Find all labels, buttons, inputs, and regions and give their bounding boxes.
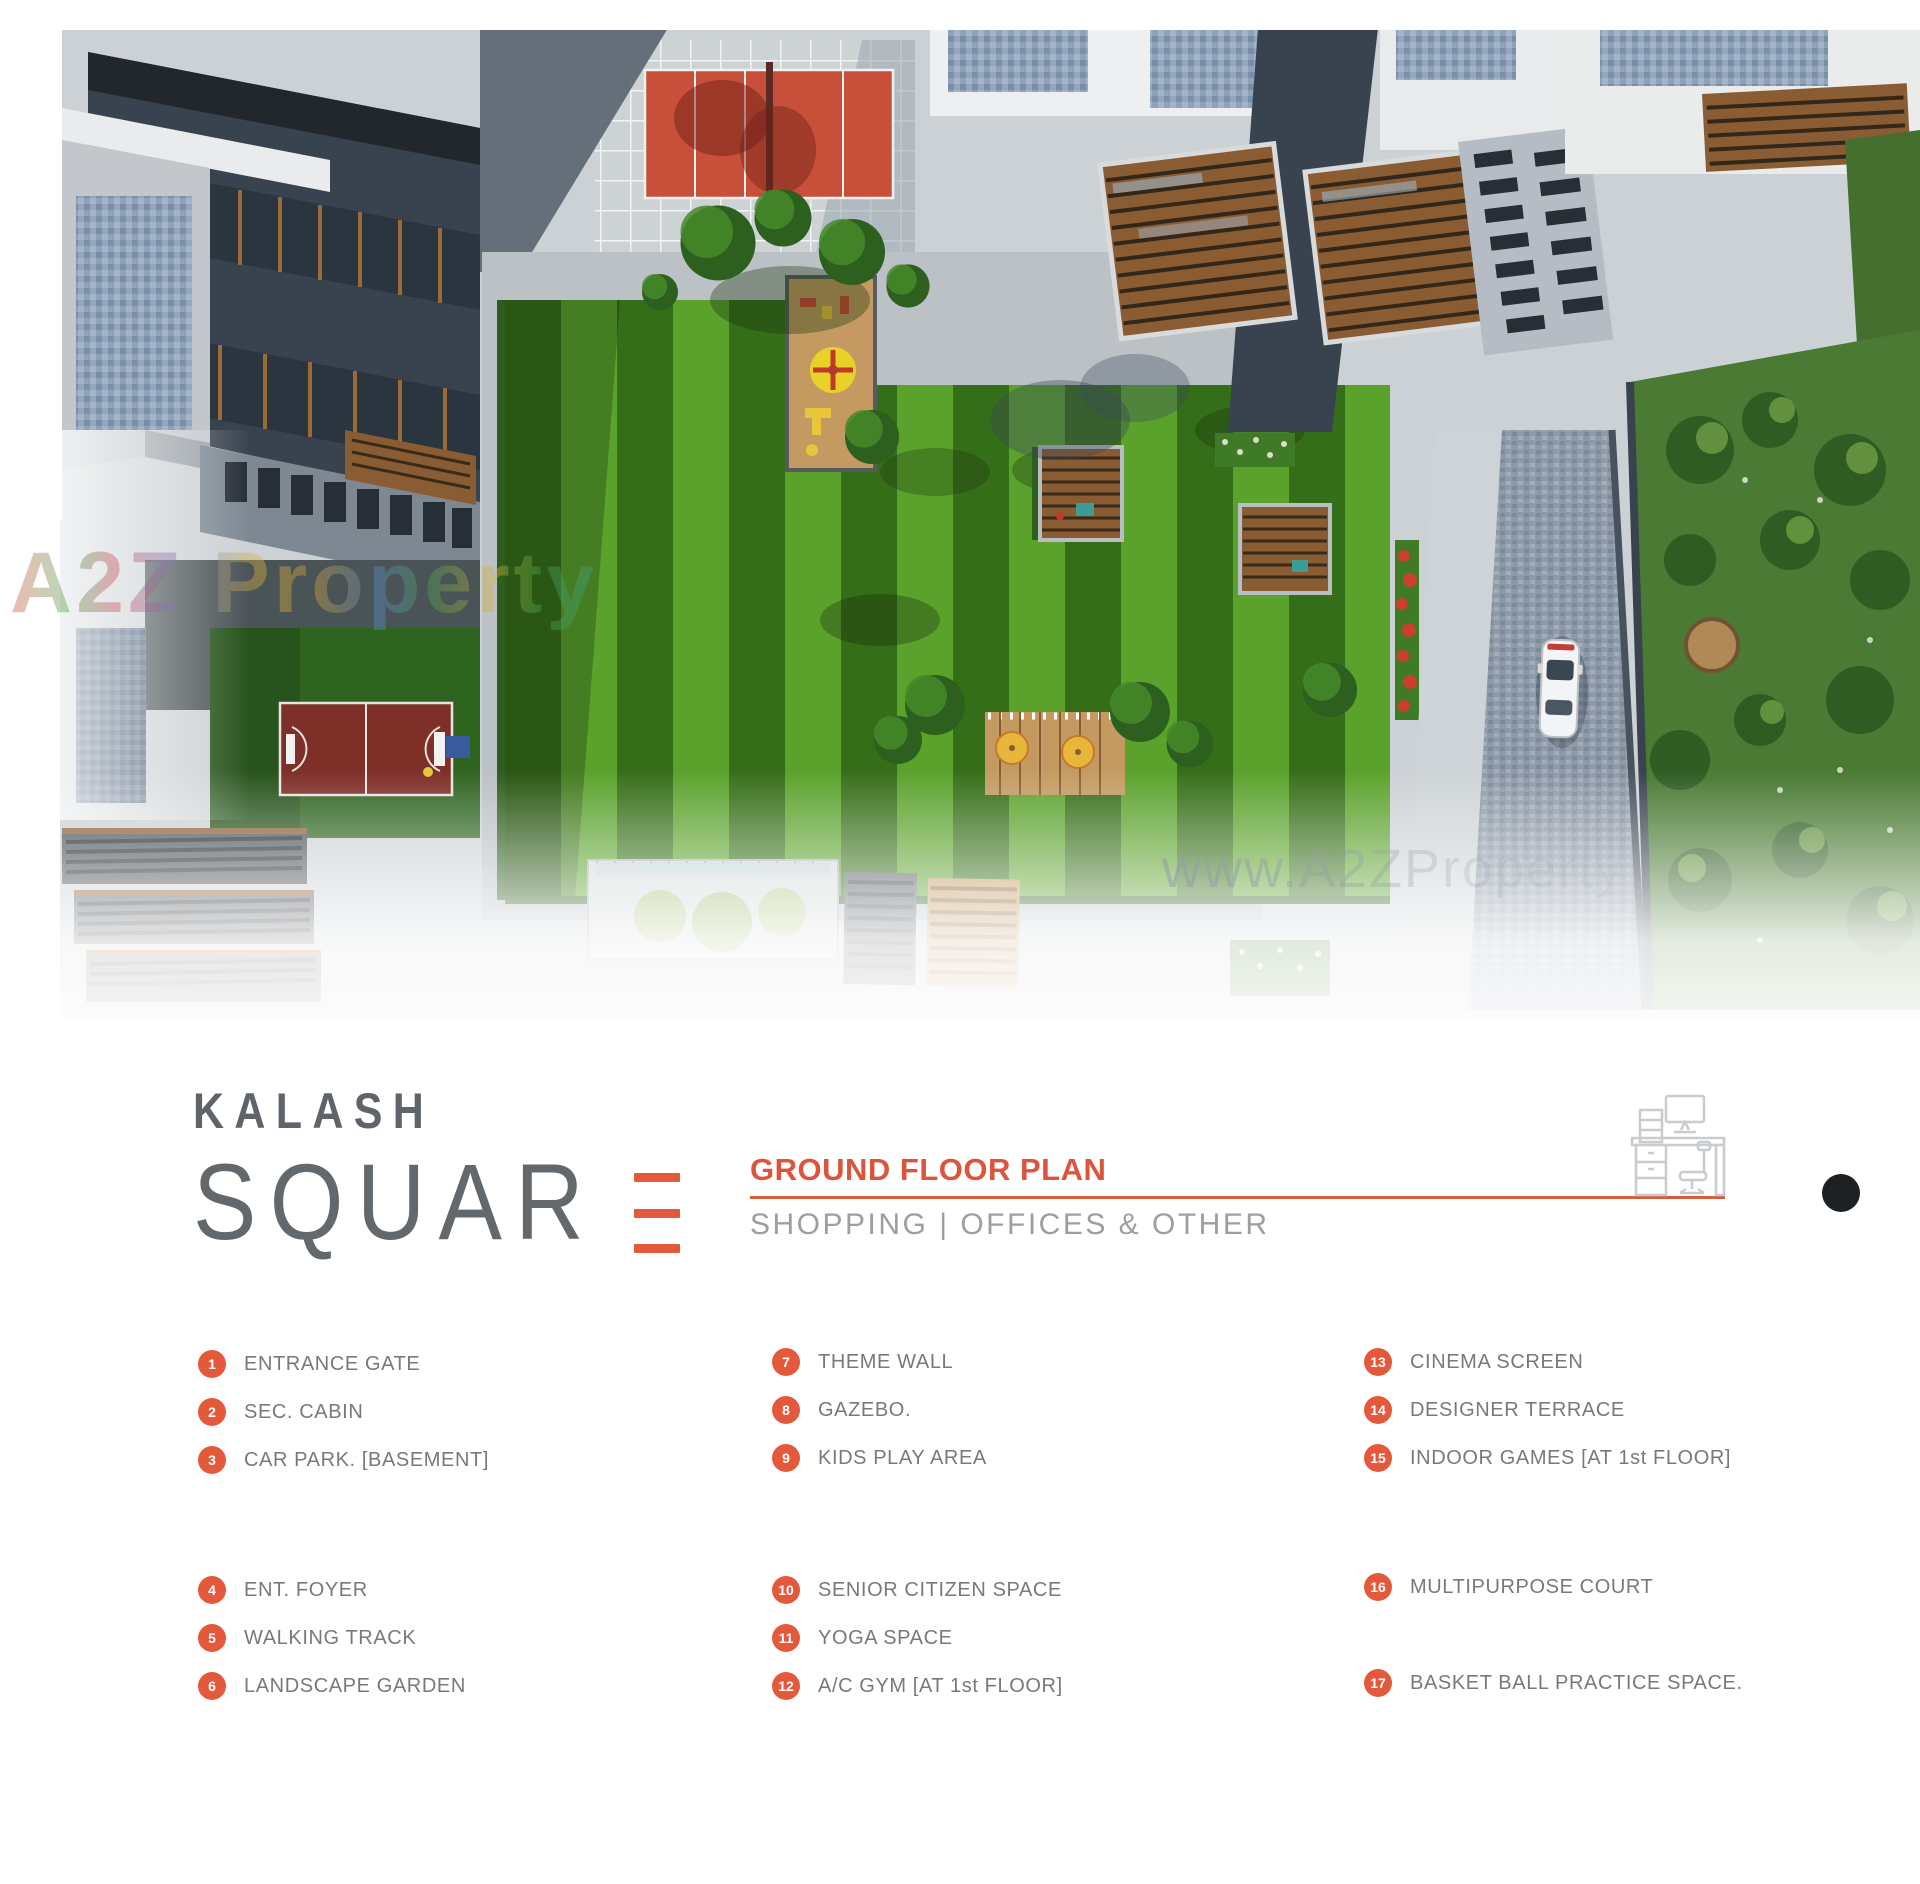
- legend-item-label: BASKET BALL PRACTICE SPACE.: [1410, 1672, 1743, 1695]
- legend-number-badge: 13: [1364, 1348, 1392, 1376]
- title-underline: [750, 1196, 1725, 1199]
- legend-item: 4 ENT. FOYER: [198, 1566, 466, 1614]
- legend-number-badge: 6: [198, 1672, 226, 1700]
- legend-number-badge: 4: [198, 1576, 226, 1604]
- legend-item-label: A/C GYM [AT 1st FLOOR]: [818, 1675, 1063, 1698]
- gazebo-pergola: [1032, 447, 1122, 540]
- legend-item: 6 LANDSCAPE GARDEN: [198, 1662, 466, 1710]
- legend-item-label: INDOOR GAMES [AT 1st FLOOR]: [1410, 1447, 1731, 1470]
- legend-number-badge: 16: [1364, 1573, 1392, 1601]
- legend-number-badge: 5: [198, 1624, 226, 1652]
- legend-item: 11 YOGA SPACE: [772, 1614, 1063, 1662]
- blue-tile-wall: [76, 196, 192, 430]
- legend-number-badge: 8: [772, 1396, 800, 1424]
- legend-item: 9 KIDS PLAY AREA: [772, 1434, 987, 1482]
- pergola-terrace-east: [1305, 152, 1490, 343]
- legend-col1-group2: 4 ENT. FOYER 5 WALKING TRACK 6 LANDSCAPE…: [198, 1566, 466, 1710]
- legend-item: 5 WALKING TRACK: [198, 1614, 466, 1662]
- legend-item-label: WALKING TRACK: [244, 1627, 416, 1650]
- legend-col3-group2: 16 MULTIPURPOSE COURT 17 BASKET BALL PRA…: [1364, 1563, 1743, 1707]
- legend-item-label: SENIOR CITIZEN SPACE: [818, 1579, 1062, 1602]
- aerial-render-graphic: [0, 0, 1920, 1080]
- legend-item-label: ENT. FOYER: [244, 1579, 368, 1602]
- white-car: [1535, 639, 1583, 738]
- legend-item-label: YOGA SPACE: [818, 1627, 953, 1650]
- legend-item: 2 SEC. CABIN: [198, 1388, 489, 1436]
- legend-item-label: DESIGNER TERRACE: [1410, 1399, 1625, 1422]
- legend-item-label: THEME WALL: [818, 1351, 953, 1374]
- legend-item-label: GAZEBO.: [818, 1399, 911, 1422]
- legend-item-label: MULTIPURPOSE COURT: [1410, 1576, 1653, 1599]
- legend-item: 17 BASKET BALL PRACTICE SPACE.: [1364, 1659, 1743, 1707]
- legend-item-label: ENTRANCE GATE: [244, 1353, 420, 1376]
- legend-item: 12 A/C GYM [AT 1st FLOOR]: [772, 1662, 1063, 1710]
- brochure-page: A2Z Property www.A2ZProperty KALASH SQUA…: [0, 0, 1920, 1884]
- legend-number-badge: 1: [198, 1350, 226, 1378]
- legend-number-badge: 9: [772, 1444, 800, 1472]
- round-planter: [1686, 619, 1738, 671]
- page-subtitle: SHOPPING | OFFICES & OTHER: [750, 1208, 1270, 1242]
- legend-item-label: KIDS PLAY AREA: [818, 1447, 987, 1470]
- legend-number-badge: 12: [772, 1672, 800, 1700]
- legend-number-badge: 17: [1364, 1669, 1392, 1697]
- legend-col3-group1: 13 CINEMA SCREEN 14 DESIGNER TERRACE 15 …: [1364, 1338, 1731, 1482]
- legend-item: 8 GAZEBO.: [772, 1386, 987, 1434]
- legend-col2-group2: 10 SENIOR CITIZEN SPACE 11 YOGA SPACE 12…: [772, 1566, 1063, 1710]
- legend-item: 14 DESIGNER TERRACE: [1364, 1386, 1731, 1434]
- legend-item: 1 ENTRANCE GATE: [198, 1340, 489, 1388]
- legend-col2-group1: 7 THEME WALL 8 GAZEBO. 9 KIDS PLAY AREA: [772, 1338, 987, 1482]
- legend-item-label: LANDSCAPE GARDEN: [244, 1675, 466, 1698]
- brand-word-kalash: KALASH: [193, 1082, 612, 1140]
- logo-letter-e-bars-icon: [634, 1173, 680, 1253]
- legend-number-badge: 7: [772, 1348, 800, 1376]
- office-desk-icon: [1628, 1090, 1728, 1198]
- legend-number-badge: 15: [1364, 1444, 1392, 1472]
- legend-item-label: CAR PARK. [BASEMENT]: [244, 1449, 489, 1472]
- aerial-site-render: A2Z Property www.A2ZProperty: [0, 0, 1920, 1080]
- legend-number-badge: 3: [198, 1446, 226, 1474]
- punch-hole-dot: [1822, 1174, 1860, 1212]
- legend-item-label: SEC. CABIN: [244, 1401, 363, 1424]
- court-equipment-cart: [446, 736, 470, 758]
- brand-word-square: SQUAR: [193, 1148, 597, 1256]
- legend-item: 7 THEME WALL: [772, 1338, 987, 1386]
- legend-number-badge: 14: [1364, 1396, 1392, 1424]
- red-multipurpose-court: [645, 62, 893, 206]
- page-title: GROUND FLOOR PLAN: [750, 1152, 1106, 1188]
- brand-logo: KALASH SQUAR: [193, 1082, 680, 1256]
- legend-number-badge: 2: [198, 1398, 226, 1426]
- legend-item-label: CINEMA SCREEN: [1410, 1351, 1583, 1374]
- legend-item: 16 MULTIPURPOSE COURT: [1364, 1563, 1743, 1611]
- legend-item: 13 CINEMA SCREEN: [1364, 1338, 1731, 1386]
- legend-number-badge: 10: [772, 1576, 800, 1604]
- legend-item: 3 CAR PARK. [BASEMENT]: [198, 1436, 489, 1484]
- legend-item: 10 SENIOR CITIZEN SPACE: [772, 1566, 1063, 1614]
- legend-item: 15 INDOOR GAMES [AT 1st FLOOR]: [1364, 1434, 1731, 1482]
- legend-number-badge: 11: [772, 1624, 800, 1652]
- legend-col1-group1: 1 ENTRANCE GATE 2 SEC. CABIN 3 CAR PARK.…: [198, 1340, 489, 1484]
- pergola-terrace-west: [1100, 144, 1295, 339]
